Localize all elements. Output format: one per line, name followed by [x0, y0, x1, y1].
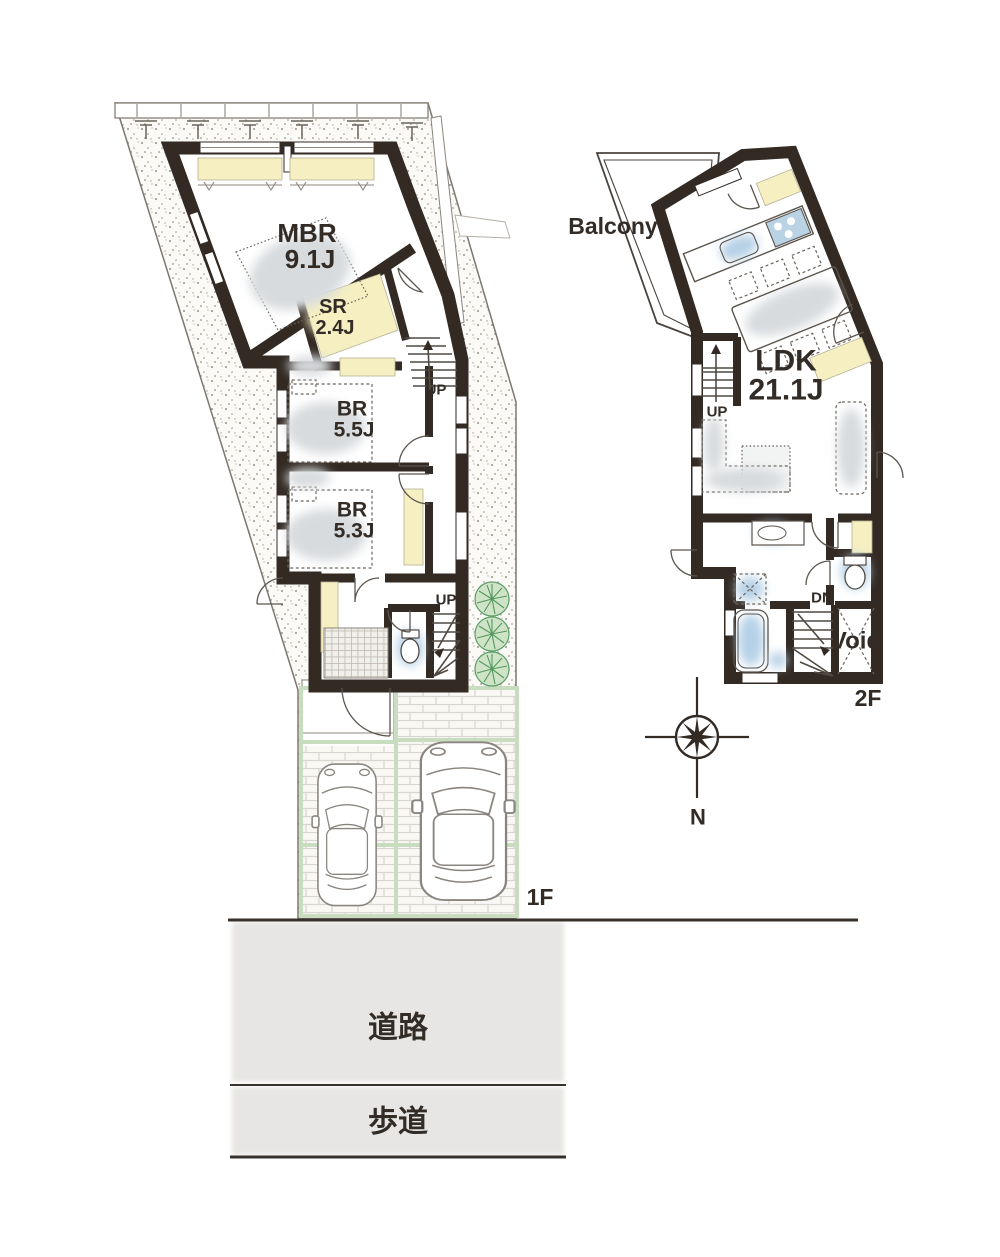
tree-icon: [475, 617, 509, 651]
stairs-up-label-1: UP: [426, 382, 447, 399]
ldk-area: 21.1J: [748, 374, 823, 407]
car-right: [412, 742, 514, 900]
car-left: [312, 764, 382, 905]
tree-icon: [475, 582, 509, 616]
floor1-label: 1F: [527, 884, 554, 910]
floor2-label: 2F: [855, 685, 882, 711]
stairs-up-label-2f: UP: [707, 404, 728, 421]
void-label: Void: [831, 628, 881, 655]
retaining-wall: [115, 103, 428, 118]
room-area-mbr: 9.1J: [285, 244, 336, 274]
room-area-br53: 5.3J: [334, 520, 375, 543]
parking-area: [299, 680, 517, 917]
room-area-sr: 2.4J: [316, 317, 355, 339]
stairs-up-label-2: UP: [436, 592, 457, 609]
compass: N: [645, 677, 749, 830]
building-1f: MBR 9.1J SR 2.4J BR 5.5J BR 5.3J UP UP: [170, 142, 467, 736]
trees: [475, 582, 509, 686]
road-label: 道路: [368, 1012, 429, 1045]
compass-north-label: N: [690, 805, 706, 830]
room-label-br55: BR: [337, 398, 367, 421]
sidewalk-label: 歩道: [368, 1106, 428, 1139]
room-label-br53: BR: [337, 499, 367, 522]
tree-icon: [475, 652, 509, 686]
side-paving: [455, 215, 510, 238]
balcony-label: Balcony: [568, 213, 658, 239]
building-2f: Balcony LDK 21.1J UP DN Void 2F: [568, 147, 903, 711]
toilet-1f: [397, 630, 423, 666]
stairs-dn-label-2f: DN: [811, 590, 833, 607]
road-band: [232, 922, 564, 1082]
entrance-tile: [324, 628, 388, 678]
floor-plan-page: MBR 9.1J SR 2.4J BR 5.5J BR 5.3J UP UP 道…: [0, 0, 1000, 1257]
floor-plan-canvas: MBR 9.1J SR 2.4J BR 5.5J BR 5.3J UP UP 道…: [0, 0, 1000, 1257]
toilet-2f: [841, 555, 869, 589]
road-area: 道路 歩道 1F: [228, 884, 858, 1157]
room-area-br55: 5.5J: [334, 419, 375, 442]
room-label-sr: SR: [319, 296, 347, 318]
compass-icon: [645, 677, 749, 798]
